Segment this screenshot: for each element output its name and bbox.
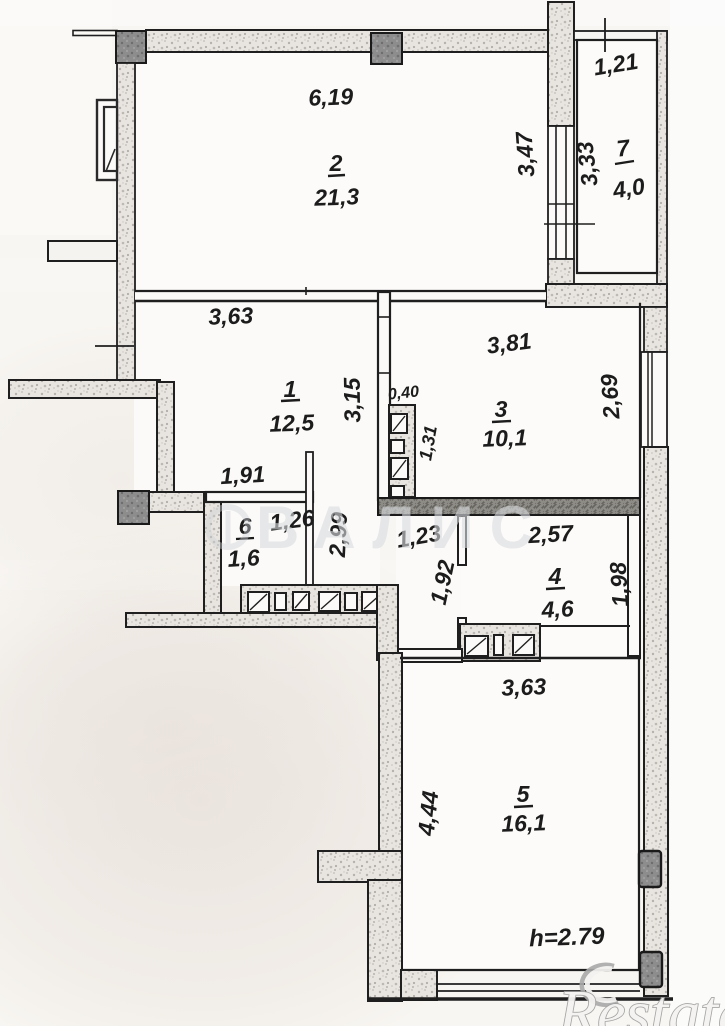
svg-text:Restate: Restate — [557, 977, 725, 1026]
svg-text:1,91: 1,91 — [220, 461, 266, 489]
svg-text:10,1: 10,1 — [482, 424, 528, 452]
svg-text:1: 1 — [284, 376, 297, 402]
svg-text:1,98: 1,98 — [604, 561, 633, 608]
svg-text:3: 3 — [495, 396, 508, 422]
svg-text:h=2.79: h=2.79 — [529, 923, 606, 953]
svg-text:3,63: 3,63 — [208, 302, 254, 330]
svg-text:2,69: 2,69 — [595, 373, 624, 421]
svg-text:4,44: 4,44 — [413, 789, 444, 837]
svg-text:ВАЛИС: ВАЛИС — [256, 494, 549, 561]
svg-text:4,0: 4,0 — [610, 173, 647, 204]
svg-text:3,15: 3,15 — [339, 376, 366, 422]
svg-text:21,3: 21,3 — [313, 183, 360, 211]
svg-text:12,5: 12,5 — [269, 409, 316, 437]
svg-text:5: 5 — [517, 781, 531, 807]
svg-text:3,81: 3,81 — [485, 327, 533, 358]
svg-text:0,40: 0,40 — [387, 383, 420, 403]
svg-text:4: 4 — [548, 563, 562, 589]
svg-text:3,33: 3,33 — [571, 140, 602, 188]
svg-text:4,6: 4,6 — [540, 595, 574, 623]
svg-text:3,47: 3,47 — [510, 130, 539, 178]
svg-text:16,1: 16,1 — [501, 809, 547, 837]
svg-text:6,19: 6,19 — [308, 83, 354, 111]
svg-text:2: 2 — [329, 150, 343, 176]
svg-text:3,63: 3,63 — [501, 673, 547, 701]
